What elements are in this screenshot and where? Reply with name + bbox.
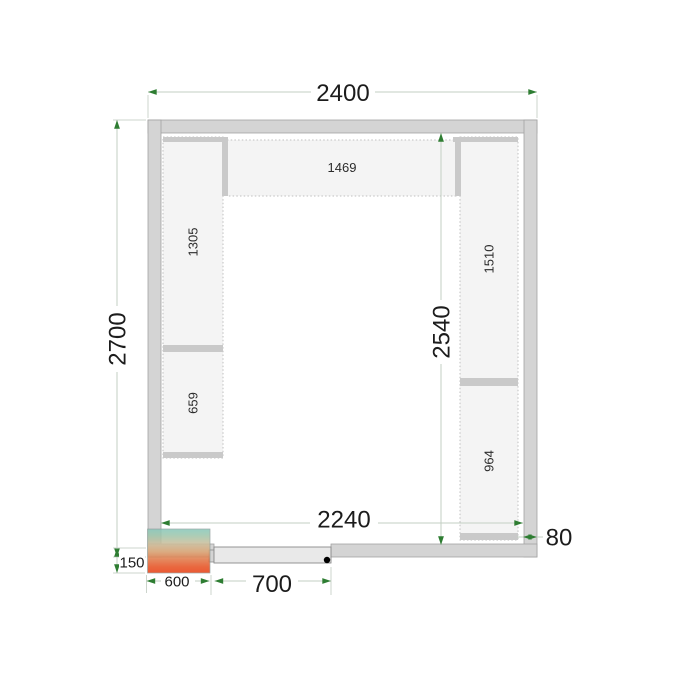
- outer-width-value: 2400: [316, 80, 369, 107]
- shelving-units: 1469 1305 659 1510 964: [163, 137, 518, 540]
- shelf-cap-top-left: [163, 137, 228, 142]
- inner-width-value: 2240: [317, 507, 370, 534]
- shelf-right-column: [460, 137, 518, 540]
- door: [209, 547, 331, 563]
- door-hinge-dot: [324, 557, 330, 563]
- unit-width-value: 600: [164, 574, 189, 591]
- wall-thickness-value: 80: [546, 525, 573, 552]
- shelf-divider-left: [163, 345, 223, 352]
- condensing-unit-block: [148, 529, 211, 573]
- shelf-right-upper-length-label: 1510: [482, 245, 497, 274]
- shelf-end-bar-left: [222, 142, 228, 196]
- shelf-divider-right: [460, 378, 518, 386]
- shelf-left-lower-length-label: 659: [186, 392, 201, 414]
- shelf-right-lower-length-label: 964: [482, 450, 497, 472]
- unit-overhang-value: 150: [119, 555, 144, 572]
- cold-room-plan-drawing: 1469 1305 659 1510 964 2400 2700 2540 22…: [0, 0, 680, 680]
- shelf-left-upper-length-label: 1305: [186, 228, 201, 257]
- wall-right: [524, 120, 537, 557]
- cold-room-plan-canvas: 1469 1305 659 1510 964 2400 2700 2540 22…: [0, 0, 680, 680]
- dimension-2400-outer-width: 2400: [148, 79, 537, 118]
- shelf-cap-bottom-left: [163, 452, 223, 458]
- wall-top: [148, 120, 537, 133]
- door-opening-value: 700: [252, 571, 292, 598]
- wall-left: [148, 120, 161, 557]
- dimension-600-unit-width: 600: [147, 573, 212, 595]
- dimension-2700-outer-depth: 2700: [104, 120, 146, 557]
- door-leaf: [214, 547, 331, 563]
- shelf-cap-top-right: [453, 137, 518, 142]
- inner-depth-value: 2540: [429, 305, 456, 358]
- shelf-top-length-label: 1469: [328, 160, 357, 175]
- wall-bottom-right-segment: [331, 544, 537, 557]
- shelf-cap-bottom-right: [460, 533, 518, 540]
- dimension-700-door-opening: 700: [215, 567, 332, 598]
- outer-depth-value: 2700: [105, 312, 132, 365]
- shelf-end-bar-right: [455, 142, 461, 196]
- dimension-150-unit-overhang: 150: [113, 548, 146, 573]
